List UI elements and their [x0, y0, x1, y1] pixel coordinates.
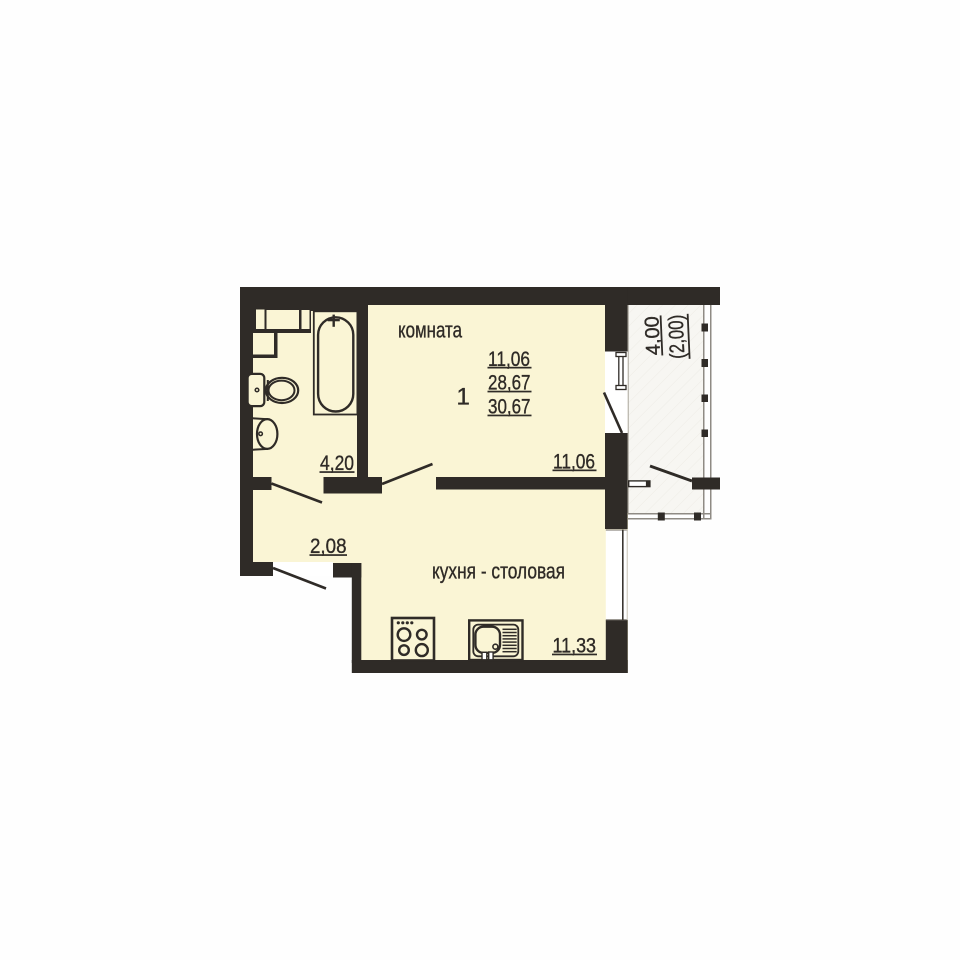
svg-text:(2,00): (2,00) [665, 314, 690, 359]
svg-text:кухня - столовая: кухня - столовая [432, 559, 565, 584]
svg-text:1: 1 [457, 383, 470, 410]
svg-text:комната: комната [398, 318, 463, 343]
